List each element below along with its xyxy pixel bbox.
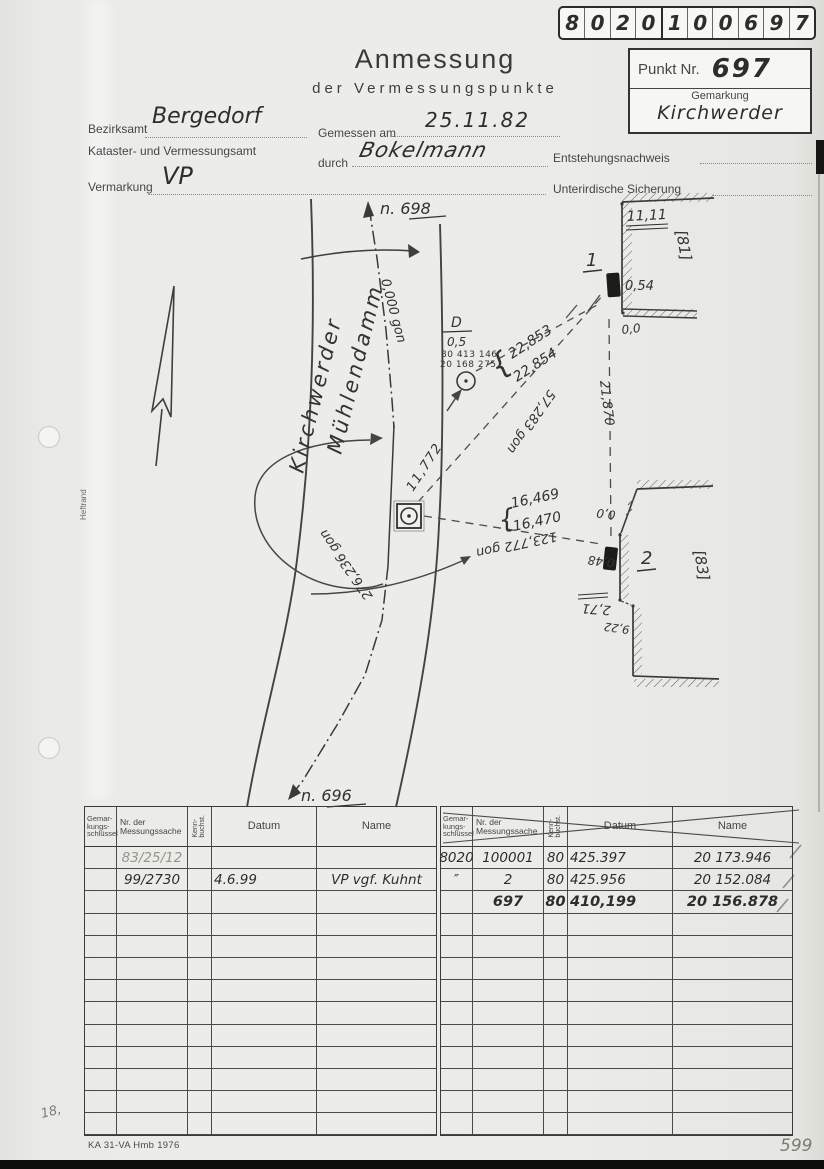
table-cell (673, 1113, 792, 1135)
col-kennbuchstabe: Kenn- buchst. (544, 807, 568, 847)
measurement-table-left: Gemar- kungs- schlüssel Nr. der Messungs… (84, 806, 437, 1136)
table-cell (441, 1069, 473, 1091)
table-cell (568, 936, 673, 958)
table-cell (188, 847, 212, 869)
table-cell: 697 (473, 891, 544, 913)
col-datum: Datum (568, 807, 673, 847)
table-cell (117, 1069, 188, 1091)
point-number-box: Punkt Nr. 697 Gemarkung Kirchwerder (628, 48, 812, 134)
gemarkung-label: Gemarkung (630, 90, 810, 102)
table-cell (317, 1091, 436, 1113)
table-cell: 20 152.084 (673, 869, 792, 891)
table-cell (441, 1025, 473, 1047)
table-cell (117, 980, 188, 1002)
col-messungssache: Nr. der Messungssache (473, 807, 544, 847)
table-cell (673, 958, 792, 980)
table-cell (188, 1047, 212, 1069)
table-cell (85, 891, 117, 913)
north-symbol-icon (152, 286, 174, 466)
table-cell (85, 914, 117, 936)
table-cell (85, 1002, 117, 1024)
point1-wall-length: 11,11 (626, 207, 667, 225)
table-cell: 80 (544, 891, 568, 913)
table-cell (117, 1113, 188, 1135)
table-cell (212, 1047, 317, 1069)
margin-note: 18, (39, 1102, 63, 1122)
form-title: Anmessung (295, 44, 575, 75)
punch-hole-top (39, 427, 60, 448)
col-gemarkungsschluessel: Gemar- kungs- schlüssel (85, 807, 117, 847)
aux-value: 0,5 (447, 335, 466, 349)
table-cell (673, 936, 792, 958)
table-cell: 99/2730 (117, 869, 188, 891)
id-digit: 0 (585, 8, 610, 38)
table-cell: 80 (544, 869, 568, 891)
id-digit: 6 (739, 8, 764, 38)
north-arrowhead (363, 201, 374, 218)
durch-label: durch (318, 156, 348, 170)
point2-zero: 0,0 (595, 506, 616, 522)
table-cell: 8020 (441, 847, 473, 869)
table-cell (117, 936, 188, 958)
table-cell (212, 847, 317, 869)
col-name: Name (673, 807, 792, 847)
table-cell (441, 914, 473, 936)
table-cell (568, 958, 673, 980)
table-cell (568, 914, 673, 936)
vermarkung-label: Vermarkung (88, 180, 153, 194)
aux-coord-y: 20 168 275 (440, 360, 497, 370)
table-cell (317, 1025, 436, 1047)
table-cell: 100001 (473, 847, 544, 869)
scanned-survey-form: n. 698 n. 696 Kirchwerder Mühlendamm 0,0… (0, 0, 824, 1169)
bearing-276gon: 276,236 gon (317, 526, 377, 602)
punkt-nr-value: 697 (712, 54, 772, 84)
label-n696: n. 696 (301, 786, 352, 805)
bezirksamt-line (145, 136, 307, 138)
table-cell (441, 958, 473, 980)
table-cell (212, 980, 317, 1002)
col-kennbuchstabe: Kenn- buchst. (188, 807, 212, 847)
table-cell (673, 914, 792, 936)
scan-bottom-edge (0, 1160, 824, 1169)
table-cell: 20 156.878 (673, 891, 792, 913)
scan-edge-mark (816, 140, 824, 174)
table-cell (117, 1047, 188, 1069)
table-cell (188, 1069, 212, 1091)
table-cell (544, 1091, 568, 1113)
id-digit: 8 (560, 8, 585, 38)
sicherung-label: Unterirdische Sicherung (553, 182, 681, 196)
id-digit: 0 (713, 8, 738, 38)
table-cell (317, 958, 436, 980)
table-cell (544, 1002, 568, 1024)
gemarkung-value: Kirchwerder (630, 102, 810, 124)
table-cell (544, 1069, 568, 1091)
id-digit: 1 (663, 8, 688, 38)
point2-length: 9,22 (603, 619, 630, 636)
table-cell (117, 958, 188, 980)
table-cell (188, 936, 212, 958)
col-name: Name (317, 807, 436, 847)
col-gemarkungsschluessel: Gemar- kungs- schlüssel (441, 807, 473, 847)
id-digit: 7 (790, 8, 814, 38)
table-cell (544, 1025, 568, 1047)
table-cell (85, 980, 117, 1002)
table-cell: 425.397 (568, 847, 673, 869)
point-id-strip: 8 0 2 0 1 0 0 6 9 7 (558, 6, 816, 40)
aux-point-d (447, 372, 475, 411)
table-cell (441, 936, 473, 958)
entstehung-label: Entstehungsnachweis (553, 151, 670, 165)
table-cell (473, 958, 544, 980)
id-digit: 9 (764, 8, 789, 38)
id-digit: 0 (688, 8, 713, 38)
table-cell (188, 1091, 212, 1113)
durch-signature: Bokelmann (357, 138, 490, 162)
table-cell (85, 1069, 117, 1091)
col-messungssache: Nr. der Messungssache (117, 807, 188, 847)
table-cell (85, 1091, 117, 1113)
table-cell (568, 1047, 673, 1069)
table-cell (673, 1091, 792, 1113)
table-cell (188, 980, 212, 1002)
table-cell (85, 847, 117, 869)
table-cell (473, 914, 544, 936)
form-subtitle: der Vermessungspunkte (285, 80, 585, 97)
punkt-nr-label: Punkt Nr. (638, 61, 700, 78)
table-cell (188, 891, 212, 913)
distance-16469: 16,469 (510, 486, 561, 512)
table-cell (85, 936, 117, 958)
table-cell (212, 914, 317, 936)
table-cell (317, 891, 436, 913)
table-cell (117, 1025, 188, 1047)
table-cell (473, 1069, 544, 1091)
table-cell (544, 914, 568, 936)
table-cell (568, 1113, 673, 1135)
table-cell (544, 958, 568, 980)
point1-marker (606, 273, 621, 298)
table-cell (188, 1002, 212, 1024)
distance-11772: 11,772 (404, 440, 446, 494)
bezirksamt-value: Bergedorf (152, 104, 261, 129)
table-cell (317, 914, 436, 936)
table-cell (85, 869, 117, 891)
table-cell (85, 958, 117, 980)
table-cell (441, 1002, 473, 1024)
aux-label-d: D (451, 315, 462, 331)
table-cell (441, 891, 473, 913)
point2-dim: 2,71 (581, 600, 611, 617)
aux-coord-x: 80 413 146 (441, 350, 498, 360)
table-cell (441, 980, 473, 1002)
direction-arrow (301, 250, 414, 259)
table-cell (568, 980, 673, 1002)
point1-offset: 0,54 (625, 279, 654, 294)
vermarkung-value: VP (162, 162, 193, 190)
table-cell (568, 1025, 673, 1047)
table-cell (544, 980, 568, 1002)
table-cell (473, 1002, 544, 1024)
table-cell (188, 914, 212, 936)
durch-line (352, 165, 548, 167)
page-number: 599 (780, 1136, 812, 1156)
table-cell (117, 914, 188, 936)
building-83 (603, 480, 719, 687)
arc-arrowhead-1 (370, 433, 383, 445)
table-cell (212, 891, 317, 913)
table-cell (473, 1113, 544, 1135)
table-cell (85, 1025, 117, 1047)
table-cell (85, 1047, 117, 1069)
table-cell: 80 (544, 847, 568, 869)
table-cell (85, 1113, 117, 1135)
table-cell (441, 1091, 473, 1113)
table-cell (473, 936, 544, 958)
table-cell: 20 173.946 (673, 847, 792, 869)
table-cell (212, 1091, 317, 1113)
point1-number: 1 (586, 250, 597, 271)
table-cell (317, 1113, 436, 1135)
table-cell (117, 1091, 188, 1113)
table-cell (212, 936, 317, 958)
table-cell (673, 980, 792, 1002)
table-cell (544, 1047, 568, 1069)
punch-hole-bottom (39, 738, 60, 759)
col-datum: Datum (212, 807, 317, 847)
table-cell (212, 1002, 317, 1024)
table-cell (544, 936, 568, 958)
vermarkung-line (148, 193, 546, 195)
table-cell: 410,199 (568, 891, 673, 913)
point2-number: 2 (641, 548, 652, 569)
table-cell: 4.6.99 (212, 869, 317, 891)
survey-point-symbol (394, 501, 424, 531)
table-cell (473, 1025, 544, 1047)
direction-arrowhead (408, 244, 420, 258)
parcel-81: [81] (672, 229, 695, 263)
table-cell: 83/25/12 (117, 847, 188, 869)
id-digit: 0 (636, 8, 662, 38)
table-cell: VP vgf. Kuhnt (317, 869, 436, 891)
distance-21870: 21,870 (596, 380, 616, 427)
table-cell (673, 1025, 792, 1047)
table-cell (117, 891, 188, 913)
table-cell (317, 1069, 436, 1091)
table-cell (188, 869, 212, 891)
table-cell (117, 1002, 188, 1024)
table-cell: 425.956 (568, 869, 673, 891)
measurement-table-right: Gemar- kungs- schlüssel Nr. der Messungs… (440, 806, 793, 1136)
table-cell (673, 1047, 792, 1069)
table-cell (317, 1047, 436, 1069)
table-cell (673, 1002, 792, 1024)
sicherung-line (712, 194, 812, 196)
point1-zero: 0,0 (621, 321, 642, 337)
amt-label: Kataster- und Vermessungsamt (88, 144, 256, 158)
table-cell (441, 1113, 473, 1135)
table-cell: ″ (441, 869, 473, 891)
label-n698: n. 698 (380, 199, 431, 218)
parcel-83: [83] (690, 549, 713, 583)
table-cell (568, 1002, 673, 1024)
table-cell (212, 1069, 317, 1091)
heftrand-label: Heftrand (79, 489, 88, 520)
table-cell (441, 1047, 473, 1069)
table-cell (212, 1025, 317, 1047)
table-cell (212, 958, 317, 980)
table-cell (317, 1002, 436, 1024)
table-cell (317, 936, 436, 958)
table-cell (188, 1025, 212, 1047)
table-cell (317, 980, 436, 1002)
table-cell (568, 1091, 673, 1113)
gemessen-value: 25.11.82 (425, 108, 530, 132)
form-id: KA 31-VA Hmb 1976 (88, 1140, 180, 1151)
id-digit: 2 (611, 8, 636, 38)
entstehung-line (700, 162, 812, 164)
table-cell (473, 980, 544, 1002)
table-cell (188, 958, 212, 980)
table-cell (317, 847, 436, 869)
table-cell (673, 1069, 792, 1091)
gemessen-line (392, 135, 560, 137)
table-cell (473, 1047, 544, 1069)
table-cell (473, 1091, 544, 1113)
table-cell: 2 (473, 869, 544, 891)
table-cell (188, 1113, 212, 1135)
bezirksamt-label: Bezirksamt (88, 122, 147, 136)
table-cell (568, 1069, 673, 1091)
table-cell (212, 1113, 317, 1135)
table-cell (544, 1113, 568, 1135)
